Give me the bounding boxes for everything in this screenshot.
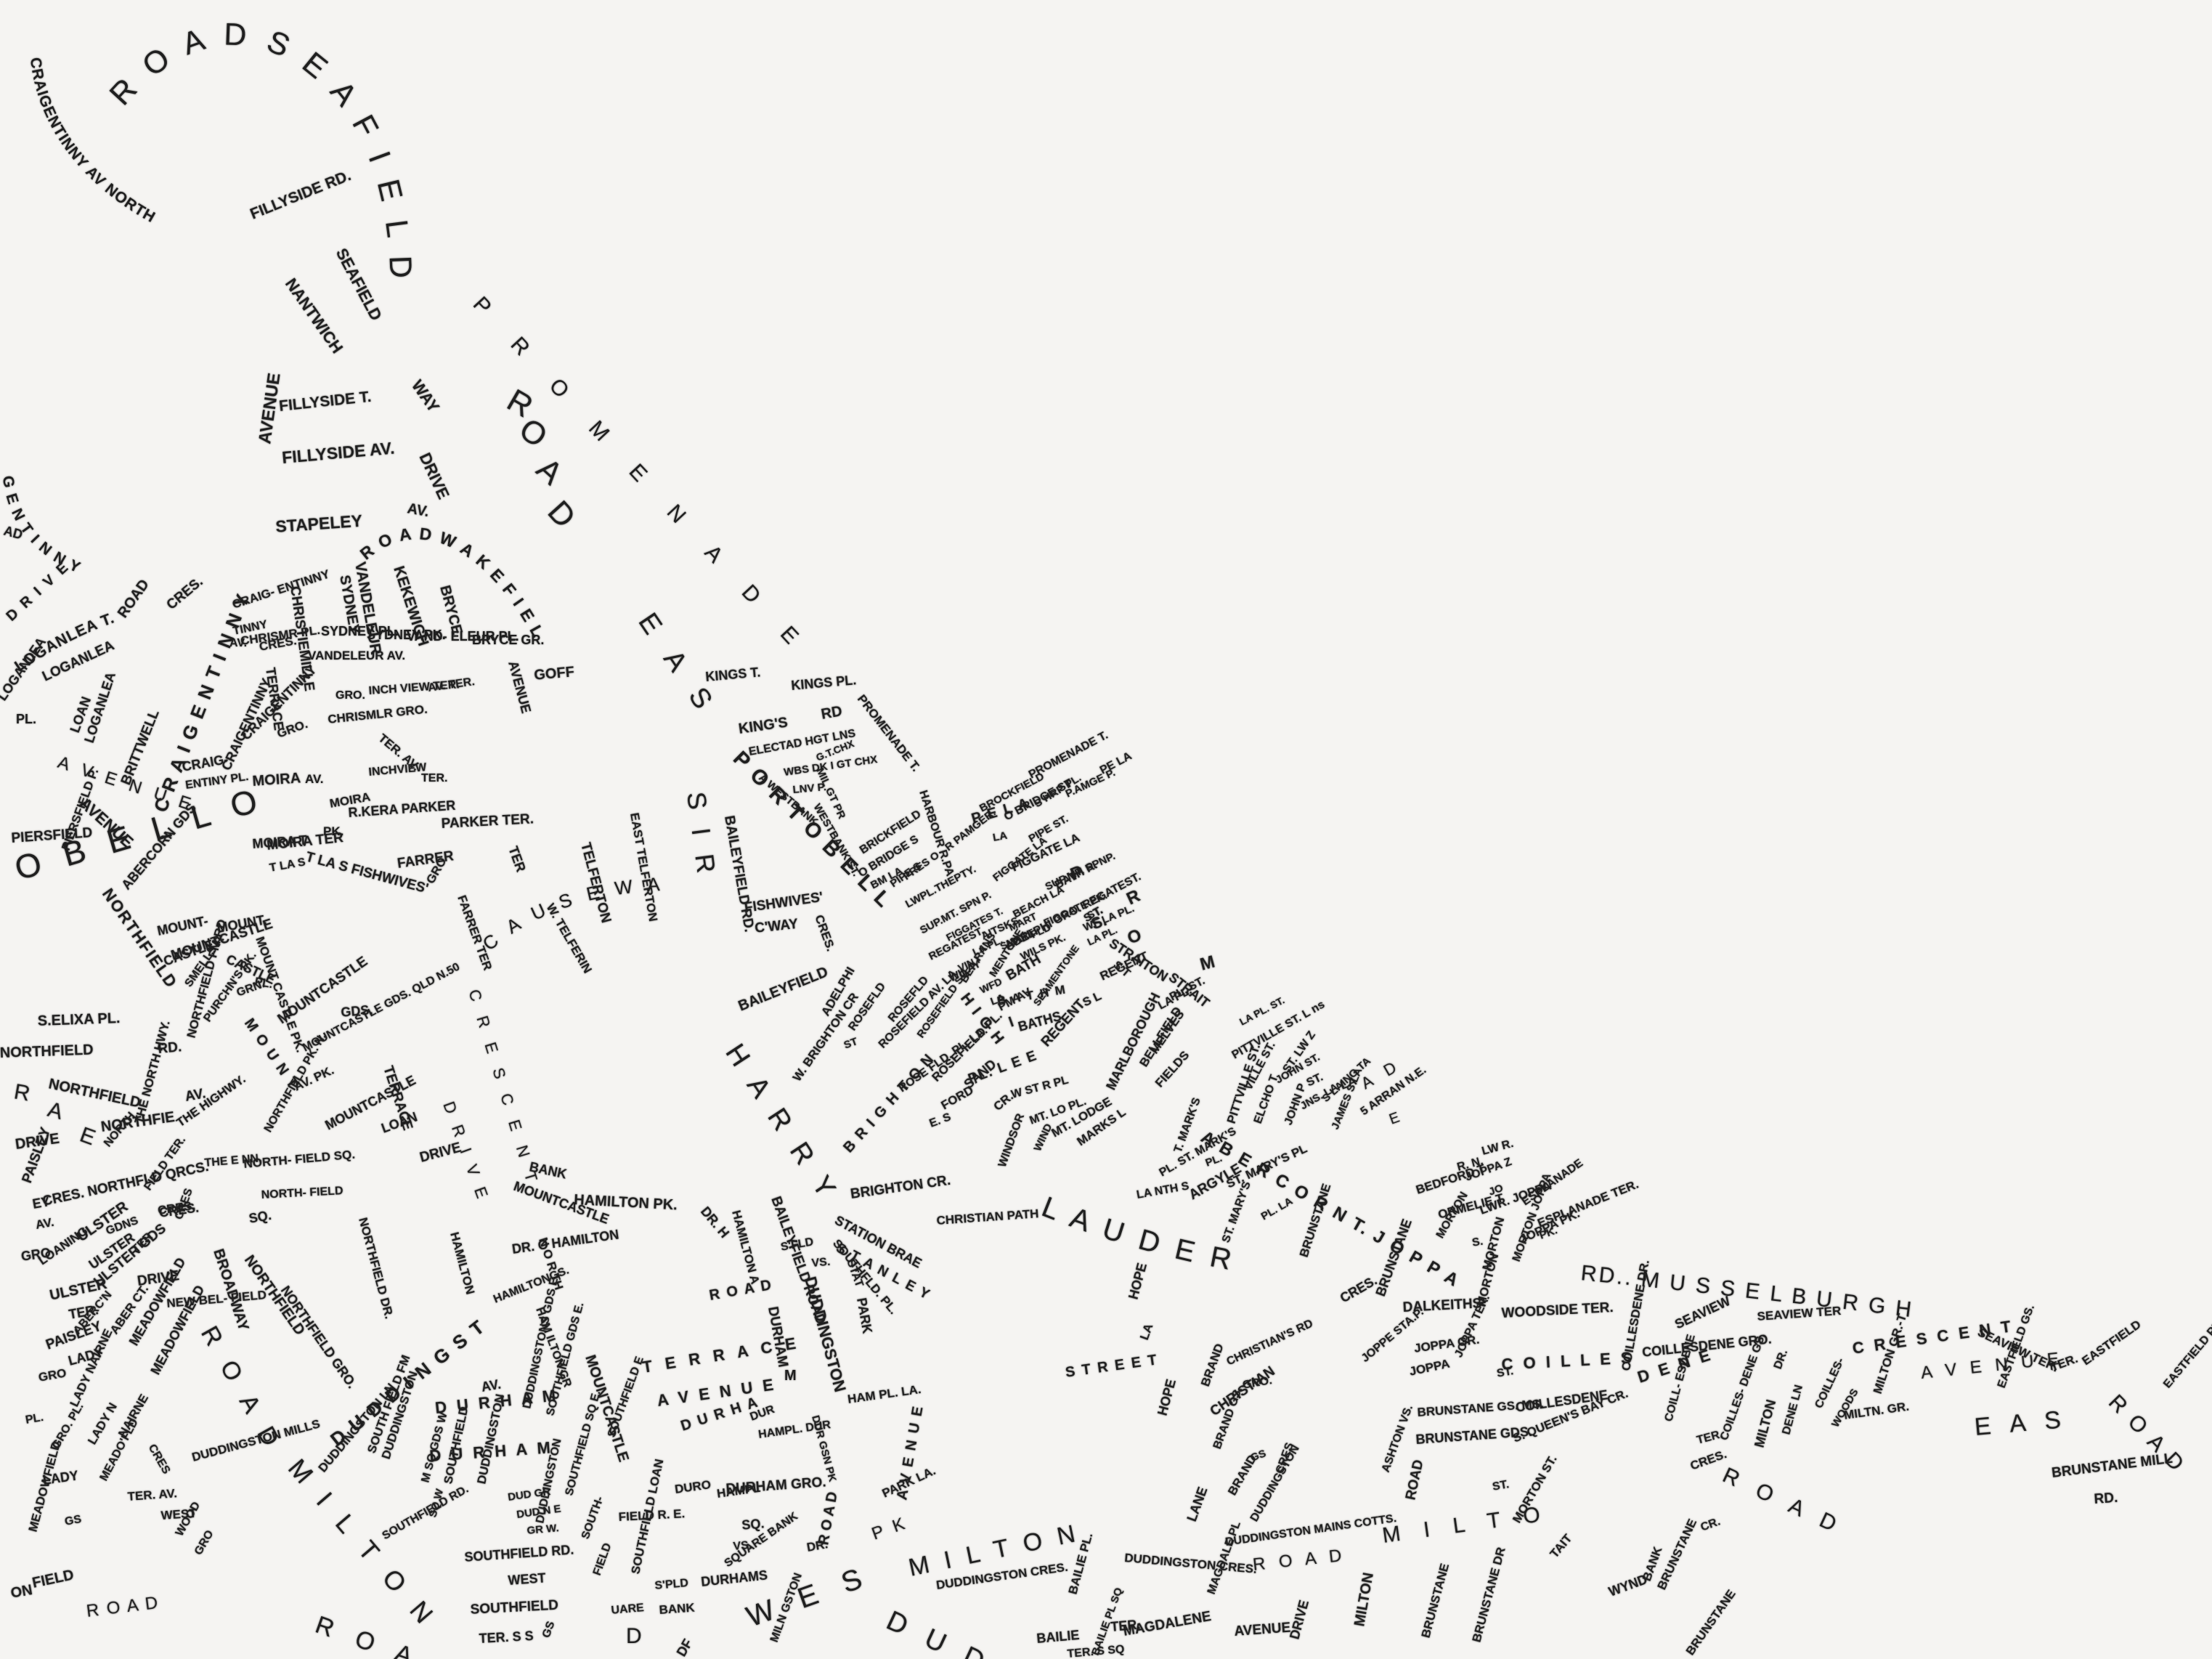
svg-text:TER. S S: TER. S S xyxy=(479,1628,534,1646)
svg-text:EY: EY xyxy=(31,1194,51,1212)
svg-text:PK.: PK. xyxy=(323,824,343,838)
svg-text:S.ELIXA PL.: S.ELIXA PL. xyxy=(37,1010,120,1029)
svg-text:GRO.: GRO. xyxy=(336,689,365,702)
svg-text:WEST: WEST xyxy=(508,1570,546,1588)
svg-text:MOIRA: MOIRA xyxy=(252,770,301,790)
svg-text:BRYCE GR.: BRYCE GR. xyxy=(472,633,544,647)
svg-text:LA: LA xyxy=(992,829,1009,844)
svg-text:SQ.: SQ. xyxy=(741,1516,765,1533)
svg-text:AV.: AV. xyxy=(229,637,247,649)
svg-text:VANDELEUR AV.: VANDELEUR AV. xyxy=(308,649,405,662)
svg-text:D: D xyxy=(626,1624,642,1648)
svg-text:VS.: VS. xyxy=(811,1256,831,1270)
svg-text:NORTHFIELD: NORTHFIELD xyxy=(0,1042,94,1061)
svg-text:S.: S. xyxy=(1471,1236,1484,1249)
svg-text:M: M xyxy=(784,1368,797,1384)
svg-text:AV.: AV. xyxy=(305,772,324,786)
svg-text:RD.: RD. xyxy=(2094,1490,2118,1507)
svg-text:PL.: PL. xyxy=(16,712,36,726)
svg-text:TER.: TER. xyxy=(421,772,447,784)
svg-text:BANK: BANK xyxy=(659,1601,696,1617)
